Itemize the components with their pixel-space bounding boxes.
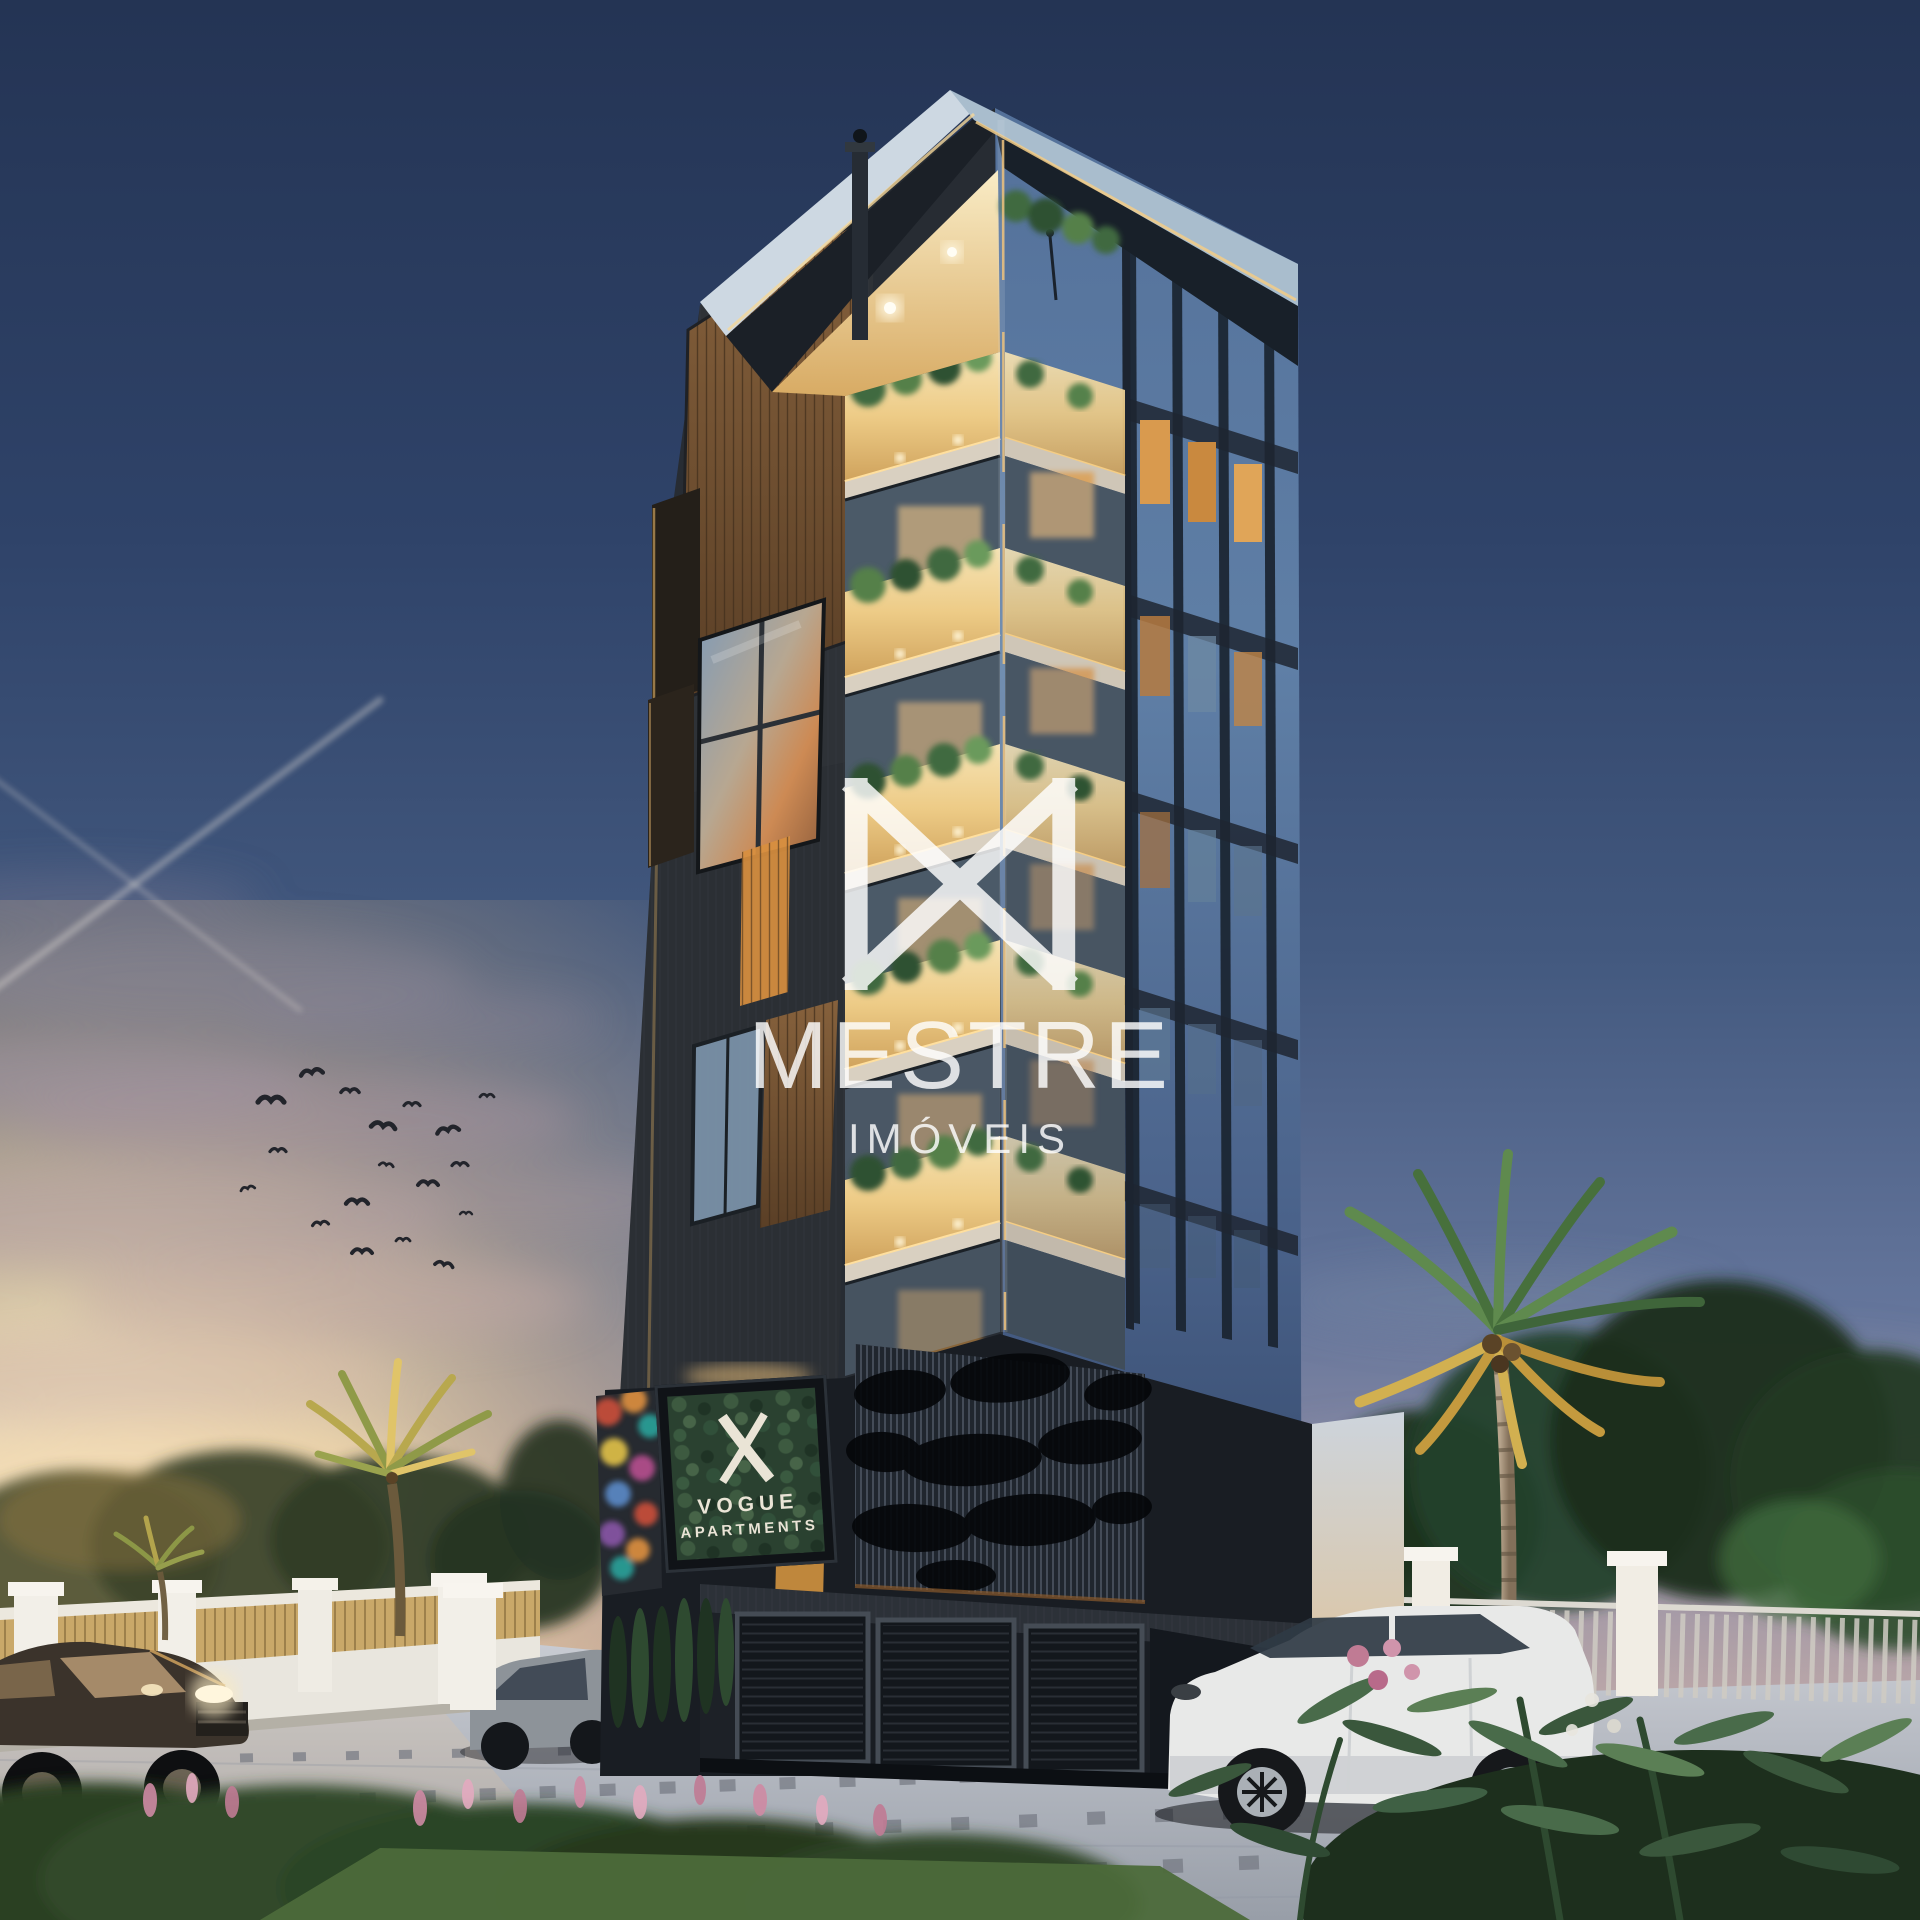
vogue-apartments-sign: VOGUE APARTMENTS: [654, 1375, 837, 1573]
headlight: [1171, 1684, 1201, 1700]
garage-doors: [737, 1614, 1142, 1772]
graffiti-mural: [594, 1387, 662, 1596]
sign-name-line2: APARTMENTS: [680, 1517, 819, 1540]
lower-window: [692, 1026, 762, 1224]
entry-gate-pier: [443, 1583, 503, 1710]
corner-balconies-right: [1005, 352, 1125, 1370]
garage-door: [878, 1620, 1014, 1768]
lower-wood-panel: [760, 1000, 838, 1228]
wavy-slat-wall: [845, 1344, 1154, 1602]
sign-name-line1: VOGUE: [697, 1490, 799, 1517]
architectural-render-scene: VOGUE APARTMENTS MESTRE IMÓVEIS: [0, 0, 1920, 1920]
vogue-x-monogram-icon: [711, 1410, 777, 1486]
sign-plant-wall: VOGUE APARTMENTS: [667, 1388, 825, 1561]
lit-slat-window: [740, 836, 790, 1006]
stairwell-glass: [698, 600, 824, 872]
headlight: [195, 1685, 233, 1703]
garage-door: [737, 1614, 868, 1762]
balcony-stack-left: [845, 344, 1000, 1376]
garage-door: [1026, 1626, 1142, 1772]
render-canvas: [0, 0, 1920, 1920]
fin-shutters: [648, 488, 700, 868]
balcony-level: [845, 1128, 1000, 1376]
